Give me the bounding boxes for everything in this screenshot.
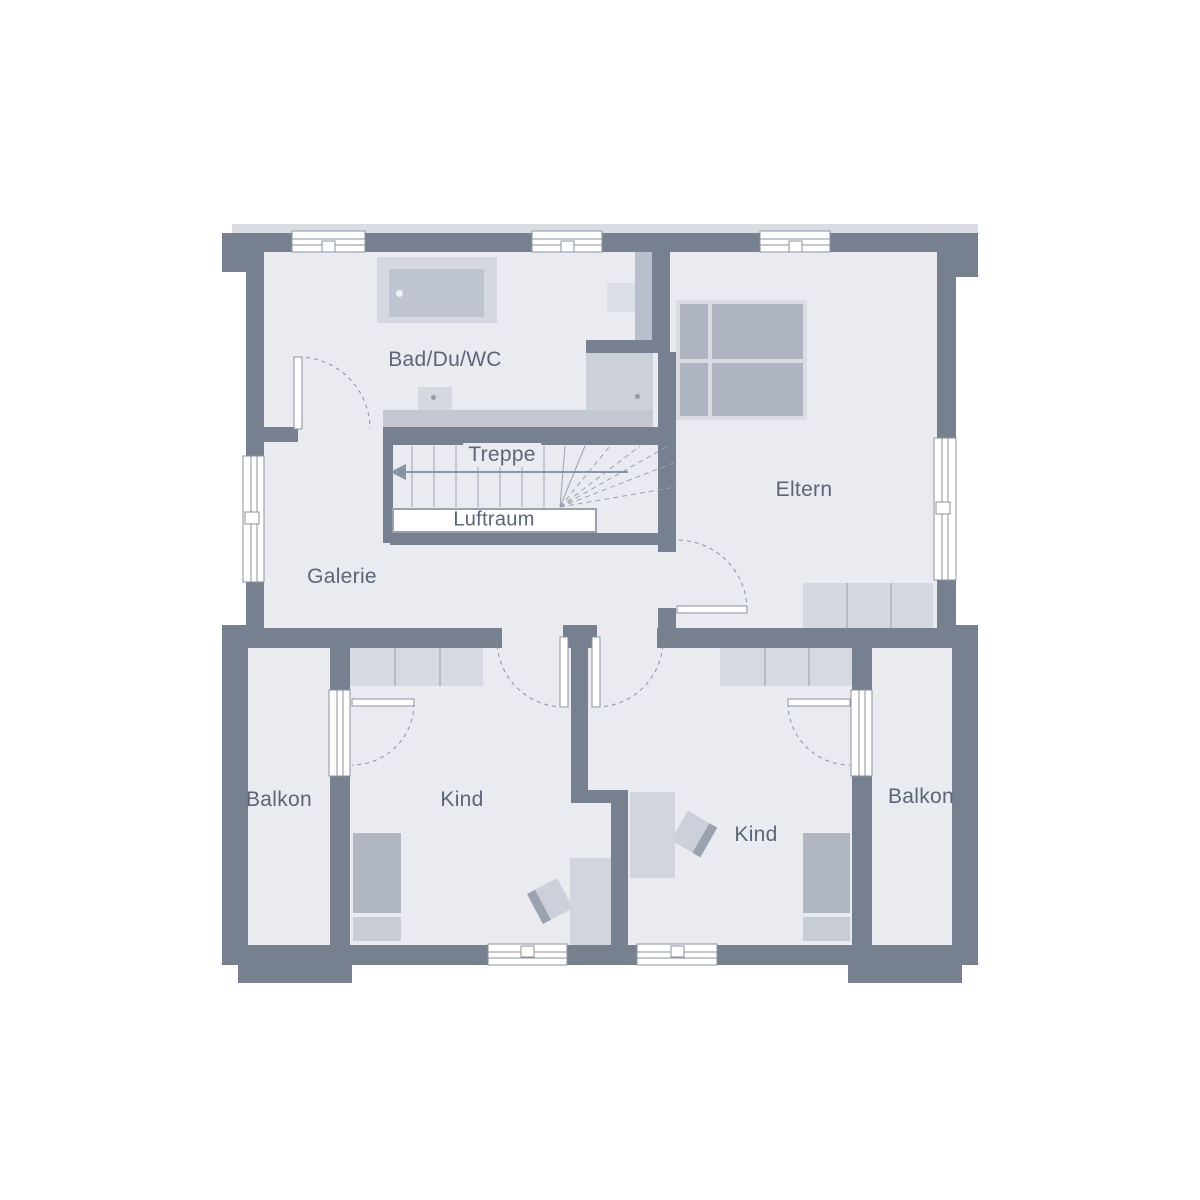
room-label-void: Luftraum [453,509,534,532]
window-icon [532,231,602,252]
door [592,637,663,707]
floor-plan: Bad/Du/WC Treppe Luftraum Galerie Eltern… [0,0,1200,1200]
window-icon [851,690,872,776]
door [788,699,850,765]
room-label-child-left: Kind [440,788,483,812]
room-label-balcony-left: Balkon [246,788,312,812]
door-swing-arc [596,640,663,707]
door-leaf [352,699,414,706]
room-label-parents: Eltern [776,478,833,502]
window-icon [934,438,956,580]
door [677,540,747,613]
room-label-balcony-right: Balkon [888,785,954,809]
room-label-child-right: Kind [734,823,777,847]
window-icon [243,456,264,582]
door-swing-arc [788,703,850,765]
window-icon [488,944,567,965]
door [352,699,414,765]
door [294,357,370,429]
door [497,637,568,707]
door-leaf [294,357,302,429]
room-label-stairs: Treppe [463,443,541,467]
door-leaf [592,637,600,707]
door-swing-arc [497,640,564,707]
stair-arrow-head-icon [390,464,406,480]
door-leaf [560,637,568,707]
door-leaf [677,606,747,613]
door-leaf [788,699,850,706]
plan-linework [0,0,1200,1200]
window-icon [760,231,830,252]
window-icon [329,690,350,776]
window-icon [292,231,365,252]
room-label-gallery: Galerie [307,565,377,589]
room-label-bath: Bad/Du/WC [388,348,502,372]
stair-winder-lines [560,446,585,507]
door-swing-arc [298,357,370,429]
door-swing-arc [677,540,747,610]
window-icon [637,944,717,965]
door-swing-arc [352,703,414,765]
stair-winder-lines-dashed [560,446,676,507]
